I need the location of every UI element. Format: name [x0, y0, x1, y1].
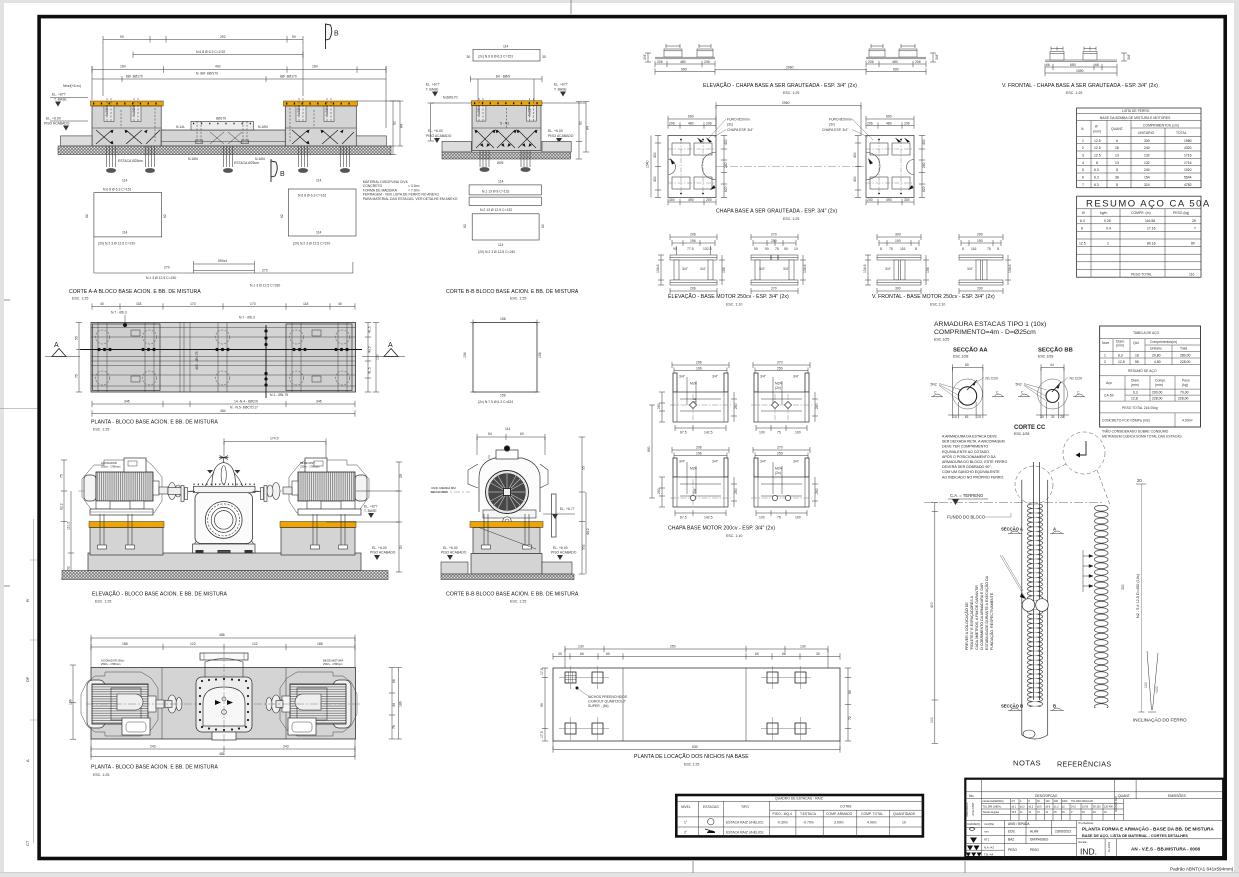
svg-text:260: 260	[734, 488, 738, 494]
svg-text:430: 430	[853, 176, 857, 182]
svg-text:330: 330	[1121, 584, 1125, 590]
svg-text:N2 - 5 # 12.5 D=450 (10x): N2 - 5 # 12.5 D=450 (10x)	[1136, 573, 1140, 618]
svg-text:13: 13	[1115, 153, 1119, 157]
svg-text:TABELA DE AÇO: TABELA DE AÇO	[1133, 331, 1160, 335]
svg-text:PESO: PESO	[1008, 848, 1017, 852]
svg-text:ESC.1/28: ESC.1/28	[1014, 432, 1029, 436]
svg-text:N.6 8 Ø 6.3 C=2.92: N.6 8 Ø 6.3 C=2.92	[196, 50, 225, 54]
svg-text:116: 116	[971, 247, 977, 251]
svg-text:486: 486	[219, 752, 225, 756]
svg-text:17.16: 17.16	[1147, 226, 1156, 230]
svg-text:90: 90	[765, 247, 769, 251]
svg-text:3/4": 3/4"	[783, 267, 790, 271]
svg-text:CAD/ARQ.: CAD/ARQ.	[967, 822, 981, 826]
svg-text:196: 196	[690, 239, 696, 243]
svg-text:N.1 - ØN.75: N.1 - ØN.75	[270, 393, 288, 397]
svg-text:ESTACA RAIZ c/HÉLICE: ESTACA RAIZ c/HÉLICE	[726, 829, 764, 834]
svg-text:250: 250	[771, 239, 777, 243]
svg-text:N.2 13 Ø 12.5 C=132: N.2 13 Ø 12.5 C=132	[480, 208, 512, 212]
svg-text:75: 75	[889, 247, 893, 251]
svg-text:100: 100	[759, 516, 765, 520]
svg-text:±0.2: ±0.2	[1020, 806, 1025, 809]
svg-text:196: 196	[696, 367, 702, 371]
svg-text:80: 80	[1191, 242, 1195, 246]
svg-text:228,00: 228,00	[1180, 360, 1190, 364]
svg-text:6: 6	[1082, 175, 1084, 179]
svg-text:COTAS: COTAS	[840, 805, 852, 809]
svg-text:Ø: Ø	[1082, 211, 1085, 215]
svg-text:400: 400	[930, 602, 934, 608]
svg-text:130: 130	[578, 645, 584, 649]
svg-text:552: 552	[582, 544, 586, 550]
svg-text:5: 5	[1082, 168, 1084, 172]
svg-text:4.00m: 4.00m	[867, 821, 877, 825]
svg-text:84 - 8Ø/9: 84 - 8Ø/9	[496, 75, 510, 79]
svg-text:N.1 3 Ø 12.5 C=330: N.1 3 Ø 12.5 C=330	[250, 284, 280, 288]
svg-text:402: 402	[215, 65, 221, 69]
svg-text:100: 100	[930, 717, 934, 723]
svg-text:PESO TOTAL 216.00kg: PESO TOTAL 216.00kg	[1122, 406, 1158, 410]
svg-text:132: 132	[1144, 153, 1150, 157]
svg-text:3/4": 3/4"	[693, 487, 697, 494]
svg-text:90: 90	[120, 35, 124, 39]
svg-text:114: 114	[122, 179, 128, 183]
svg-text:345: 345	[124, 400, 130, 404]
svg-text:250cv - 1780rpm: 250cv - 1780rpm	[300, 464, 319, 468]
svg-text:118: 118	[136, 302, 142, 306]
svg-text:ESTACA RAIZ c/HÉLICE: ESTACA RAIZ c/HÉLICE	[726, 820, 764, 825]
svg-text:6.3: 6.3	[1094, 168, 1099, 172]
svg-text:ESC.1:10: ESC.1:10	[930, 303, 945, 307]
svg-text:690: 690	[893, 68, 899, 72]
svg-text:4782: 4782	[1184, 183, 1192, 187]
svg-text:345: 345	[316, 400, 322, 404]
svg-text:3/4": 3/4"	[760, 460, 767, 464]
svg-text:±0.8: ±0.8	[1046, 806, 1051, 809]
svg-text:mm(Pa): mm(Pa)	[984, 822, 994, 826]
svg-text:FUNDO DO BLOCO: FUNDO DO BLOCO	[947, 515, 986, 520]
svg-text:62: 62	[393, 121, 397, 125]
svg-text:116.56: 116.56	[1145, 219, 1155, 223]
svg-text:N. 8Ø- 8Ø/170: N. 8Ø- 8Ø/170	[196, 72, 218, 76]
svg-text:(2x): (2x)	[775, 386, 781, 390]
svg-text:480: 480	[886, 121, 892, 125]
svg-text:134.6: 134.6	[863, 264, 867, 273]
svg-text:120: 120	[1046, 800, 1051, 803]
svg-text:8: 8	[915, 247, 917, 251]
svg-text:8Ø170: 8Ø170	[216, 117, 226, 121]
svg-text:EL. +6.00: EL. +6.00	[428, 129, 443, 133]
svg-text:N.3Ø4: N.3Ø4	[105, 106, 109, 116]
svg-text:COM UM GANCHO EQUIVALENTE: COM UM GANCHO EQUIVALENTE	[942, 470, 1000, 474]
svg-text:V. FRONTAL - BASE MOTOR 250cv: V. FRONTAL - BASE MOTOR 250cv - ESP. 3/4…	[872, 294, 995, 300]
svg-text:4320: 4320	[1184, 146, 1192, 150]
svg-text:Unitario: Unitario	[1150, 347, 1162, 351]
svg-text:SECÇÃO BB: SECÇÃO BB	[1038, 347, 1073, 354]
svg-text:66: 66	[580, 652, 584, 656]
svg-text:N.A.-A3: N.A.-A3	[984, 845, 994, 849]
svg-text:430: 430	[653, 176, 657, 182]
svg-text:T. BASE: T. BASE	[364, 509, 377, 513]
svg-text:FURO Ø20mm: FURO Ø20mm	[829, 118, 852, 122]
svg-text:206: 206	[904, 121, 910, 125]
svg-text:N.6Ø/170: N.6Ø/170	[443, 96, 458, 100]
svg-text:250cv - 1780rpm: 250cv - 1780rpm	[101, 662, 120, 666]
svg-text:N.1 3 Ø 12.5 C=230: N.1 3 Ø 12.5 C=230	[146, 276, 176, 280]
svg-text:ELEVAÇÃO - BLOCO BASE ACION. E: ELEVAÇÃO - BLOCO BASE ACION. E BB. DE MI…	[92, 591, 228, 598]
svg-text:N1 C/20: N1 C/20	[1070, 377, 1083, 381]
svg-text:72: 72	[848, 716, 852, 720]
svg-text:ESTABILIDADE DURANTE A EXECUÇÃ: ESTABILIDADE DURANTE A EXECUÇÃO DA	[984, 575, 989, 650]
svg-text:ALAN: ALAN	[1030, 830, 1039, 834]
svg-text:186: 186	[69, 699, 73, 705]
svg-text:154: 154	[1144, 175, 1150, 179]
svg-text:132: 132	[1144, 161, 1150, 165]
svg-text:CONCRETO FCK=25MPa (m3): CONCRETO FCK=25MPa (m3)	[1102, 419, 1150, 423]
svg-text:Comprimentos(m): Comprimentos(m)	[1150, 340, 1177, 344]
svg-text:ESC. 1:25: ESC. 1:25	[783, 217, 799, 221]
svg-text:LTDA./ABNT: LTDA./ABNT	[972, 802, 975, 816]
svg-text:QUANT: QUANT	[1118, 794, 1130, 798]
svg-text:DEVE TER COMPRIMENTO: DEVE TER COMPRIMENTO	[942, 445, 988, 449]
svg-text:206: 206	[690, 233, 696, 237]
svg-text:206: 206	[669, 121, 675, 125]
svg-text:3/4": 3/4"	[793, 460, 800, 464]
svg-text:20: 20	[1040, 415, 1044, 419]
svg-text:TIPO: TIPO	[741, 805, 749, 809]
svg-text:1: 1	[1104, 353, 1106, 357]
svg-text:58: 58	[1135, 360, 1139, 364]
svg-text:A: A	[1053, 527, 1056, 532]
svg-text:50-120: 50-120	[1093, 806, 1101, 809]
svg-text:118: 118	[303, 302, 309, 306]
svg-text:3/4": 3/4"	[935, 53, 939, 60]
svg-text:12.5: 12.5	[1079, 242, 1086, 246]
svg-text:29: 29	[399, 474, 403, 478]
svg-text:1716: 1716	[1184, 153, 1192, 157]
svg-text:84: 84	[586, 126, 590, 130]
svg-text:CORTE CC: CORTE CC	[1014, 425, 1046, 431]
svg-text:44: 44	[392, 703, 396, 707]
svg-text:TOL.DIM.ANGULAR: TOL.DIM.ANGULAR	[1071, 800, 1093, 803]
svg-text:A ARMADURA DA ESTACA DEVE: A ARMADURA DA ESTACA DEVE	[942, 435, 997, 439]
svg-text:TOL.DIM.LINEAL: TOL.DIM.LINEAL	[983, 806, 1002, 809]
svg-text:QUANTIDADE: QUANTIDADE	[893, 812, 916, 816]
svg-text:430: 430	[853, 152, 857, 158]
svg-text:T.ESTACA: T.ESTACA	[800, 812, 817, 816]
svg-text:QUANT.: QUANT.	[1111, 127, 1123, 131]
svg-text:114: 114	[503, 45, 509, 49]
svg-text:NICHOS PREENCHIDOS: NICHOS PREENCHIDOS	[588, 695, 628, 699]
svg-text:ESC. 1:25: ESC. 1:25	[510, 297, 526, 301]
svg-text:DF: DF	[25, 676, 30, 682]
svg-text:*NÃO CONSIDERADO SOBRE CONSUMO: *NÃO CONSIDERADO SOBRE CONSUMO	[1102, 429, 1169, 434]
svg-text:3/4": 3/4"	[793, 375, 800, 379]
svg-text:tolerância(GERAIS): tolerância(GERAIS)	[983, 800, 1004, 803]
svg-text:188: 188	[122, 642, 128, 646]
svg-text:114: 114	[505, 427, 511, 431]
svg-text:690: 690	[886, 115, 892, 119]
svg-text:324: 324	[1144, 183, 1150, 187]
svg-text:20,80: 20,80	[1152, 353, 1161, 357]
svg-text:3/4": 3/4"	[712, 460, 719, 464]
svg-text:CT: CT	[25, 840, 30, 846]
svg-text:8: 8	[997, 247, 999, 251]
svg-text:290: 290	[977, 233, 983, 237]
svg-text:80: 80	[965, 363, 969, 367]
svg-text:PLANTA DE LOCAÇÃO DOS NICHOS N: PLANTA DE LOCAÇÃO DOS NICHOS NA BASE	[634, 753, 749, 760]
svg-text:A: A	[54, 342, 59, 349]
svg-text:12.5: 12.5	[1094, 153, 1101, 157]
svg-text:20: 20	[1137, 478, 1142, 483]
svg-text:4: 4	[1082, 161, 1084, 165]
svg-text:N.14L: N.14L	[176, 125, 185, 129]
svg-text:250cv - 1780rpm: 250cv - 1780rpm	[101, 464, 120, 468]
svg-text:M24: M24	[690, 467, 697, 471]
svg-text:67.5: 67.5	[680, 516, 687, 520]
svg-text:5.8: 5.8	[693, 398, 697, 403]
svg-text:1920: 1920	[1184, 168, 1192, 172]
svg-text:18: 18	[1135, 353, 1139, 357]
svg-text:300: 300	[669, 198, 675, 202]
svg-text:280,00: 280,00	[1180, 353, 1190, 357]
svg-text:CHAPA BASE MOTOR 200cv - ESP.: CHAPA BASE MOTOR 200cv - ESP. 3/4" (2x)	[668, 526, 775, 532]
svg-text:PISO ACABADO: PISO ACABADO	[426, 134, 452, 138]
svg-text:300: 300	[895, 233, 901, 237]
svg-text:BASE DA BOMBA DE MISTURA E MOT: BASE DA BOMBA DE MISTURA E MOTORES	[1100, 116, 1171, 120]
svg-text:2: 2	[1082, 146, 1084, 150]
svg-text:164: 164	[120, 65, 126, 69]
svg-text:75: 75	[777, 431, 781, 435]
svg-text:±0.3: ±0.3	[1029, 806, 1034, 809]
svg-text:PLANTA - BLOCO BASE ACION. E: PLANTA - BLOCO BASE ACION. E BB. DE MIST…	[91, 420, 218, 426]
svg-text:66: 66	[1046, 63, 1050, 67]
svg-text:Tolerân.Angular: Tolerân.Angular	[983, 811, 1000, 814]
svg-text:62: 62	[85, 214, 89, 218]
svg-text:PISO ACABADO: PISO ACABADO	[370, 551, 396, 555]
svg-text:270: 270	[777, 446, 783, 450]
svg-text:590x4: 590x4	[218, 259, 227, 263]
svg-text:430: 430	[724, 139, 728, 145]
svg-text:243: 243	[283, 745, 289, 749]
svg-text:55: 55	[582, 466, 586, 470]
svg-text:90: 90	[754, 247, 758, 251]
svg-text:70,00: 70,00	[1180, 391, 1189, 395]
svg-text:TOTAL: TOTAL	[1176, 131, 1187, 135]
svg-text:N.6 8 Ø 6.3 C=161: N.6 8 Ø 6.3 C=161	[298, 194, 326, 198]
svg-text:156: 156	[722, 267, 726, 273]
svg-text:300: 300	[904, 198, 910, 202]
svg-text:44.2: 44.2	[586, 528, 590, 535]
svg-text:N.3Ø4: N.3Ø4	[528, 106, 532, 116]
svg-text:243: 243	[150, 745, 156, 749]
svg-text:6.3: 6.3	[1094, 183, 1099, 187]
svg-text:ESC. 1:10: ESC. 1:10	[726, 303, 742, 307]
svg-text:PISO ACABADO: PISO ACABADO	[44, 122, 70, 126]
svg-text:3/4": 3/4"	[967, 267, 974, 271]
svg-text:120-400: 120-400	[1104, 806, 1113, 809]
svg-text:36: 36	[1115, 175, 1119, 179]
svg-text:N.1Ø4: N.1Ø4	[255, 157, 265, 161]
svg-text:300: 300	[895, 287, 901, 291]
svg-text:486: 486	[219, 633, 225, 637]
svg-text:240: 240	[1144, 146, 1150, 150]
svg-text:5N2: 5N2	[931, 383, 937, 387]
svg-text:114: 114	[498, 180, 504, 184]
svg-text:5 - N1: 5 - N1	[500, 122, 509, 126]
svg-text:EL. +6.00: EL. +6.00	[46, 117, 61, 121]
svg-text:206: 206	[868, 60, 874, 64]
svg-text:PLANTA FORMA E ARMAÇÃO - BASE: PLANTA FORMA E ARMAÇÃO - BASE DA BB. DE …	[1082, 826, 1214, 832]
svg-text:T.B.-A4: T.B.-A4	[984, 853, 994, 857]
svg-text:480: 480	[892, 60, 898, 64]
svg-text:CA-50: CA-50	[1104, 394, 1114, 398]
svg-text:206: 206	[706, 121, 712, 125]
svg-text:0-10: 0-10	[1071, 806, 1076, 809]
svg-text:10: 10	[794, 247, 798, 251]
svg-text:Padrão ABNT(A1 841x594mm): Padrão ABNT(A1 841x594mm)	[1170, 867, 1234, 872]
svg-text:270: 270	[777, 361, 783, 365]
svg-text:(20) N.2 3 Ø 12.5 C=210: (20) N.2 3 Ø 12.5 C=210	[98, 242, 135, 246]
svg-text:290: 290	[977, 287, 983, 291]
svg-text:330: 330	[1144, 139, 1150, 143]
svg-text:200: 200	[706, 198, 712, 202]
svg-text:LISTA DE FERRO: LISTA DE FERRO	[1122, 109, 1150, 113]
svg-text:Compr.: Compr.	[1155, 379, 1166, 383]
svg-text:N.1 13 Ø 8 C=132: N.1 13 Ø 8 C=132	[482, 189, 510, 193]
svg-text:CORTE B-B BLOCO BASE ACION. E: CORTE B-B BLOCO BASE ACION. E BB. DE MIS…	[446, 592, 579, 598]
svg-text:RESUMO AÇO CA 50A: RESUMO AÇO CA 50A	[1086, 199, 1211, 210]
svg-text:116: 116	[900, 247, 906, 251]
svg-text:SUPER - (8x): SUPER - (8x)	[588, 704, 609, 708]
svg-text:76: 76	[392, 725, 396, 729]
svg-text:100: 100	[795, 516, 801, 520]
svg-text:228,00: 228,00	[1178, 397, 1188, 401]
svg-text:PESO: PESO	[1030, 848, 1039, 852]
svg-text:FURO Ø20mm: FURO Ø20mm	[727, 118, 750, 122]
svg-text:100: 100	[1144, 682, 1148, 688]
svg-text:1980: 1980	[1184, 139, 1192, 143]
svg-text:206: 206	[657, 60, 663, 64]
svg-text:23/08/2023: 23/08/2023	[1055, 830, 1071, 834]
svg-text:EMISSÕES: EMISSÕES	[1168, 793, 1186, 798]
svg-text:NÍVEL: NÍVEL	[681, 805, 691, 809]
svg-text:4,00m³: 4,00m³	[1182, 419, 1193, 423]
svg-text:60: 60	[755, 652, 759, 656]
svg-text:66: 66	[848, 690, 852, 694]
svg-text:100: 100	[795, 431, 801, 435]
svg-text:-0.70m: -0.70m	[803, 821, 814, 825]
svg-text:NT1: NT1	[984, 838, 990, 842]
svg-text:3/4": 3/4"	[1127, 53, 1131, 60]
svg-text:EL. +6.00: EL. +6.00	[443, 546, 458, 550]
svg-text:B: B	[334, 31, 339, 38]
svg-text:METRAGEM CUBICA SOMA TOTAL DAS: METRAGEM CUBICA SOMA TOTAL DAS ESTACAS.	[1102, 435, 1183, 439]
svg-text:T. BASE: T. BASE	[426, 87, 439, 91]
svg-text:M24: M24	[690, 382, 697, 386]
svg-text:Ø: Ø	[1095, 125, 1098, 129]
svg-text:12.5: 12.5	[1094, 146, 1101, 150]
svg-text:COMPRIMENTOS (cm): COMPRIMENTOS (cm)	[1143, 123, 1179, 127]
svg-text:206: 206	[696, 361, 702, 365]
svg-text:6: 6	[1116, 139, 1118, 143]
svg-text:3: 3	[1082, 153, 1084, 157]
svg-text:Peso: Peso	[1182, 379, 1190, 383]
svg-text:30: 30	[467, 55, 471, 59]
svg-text:3/4": 3/4"	[643, 53, 647, 60]
svg-text:ESTACA Ø25cm: ESTACA Ø25cm	[118, 159, 143, 163]
svg-text:31: 31	[1051, 415, 1055, 419]
svg-text:(2x) N.7 5 Ø 6.3 C=624: (2x) N.7 5 Ø 6.3 C=624	[478, 400, 513, 404]
svg-text:CHAPA ESP. 3/4": CHAPA ESP. 3/4"	[727, 128, 754, 132]
svg-text:N.6 8 Ø 6.3 C=151: N.6 8 Ø 6.3 C=151	[103, 188, 131, 192]
svg-text:110.2: 110.2	[67, 522, 71, 530]
svg-text:2960: 2960	[786, 66, 794, 70]
svg-text:DEVERÁ SER DOBRADO 90°,: DEVERÁ SER DOBRADO 90°,	[942, 465, 992, 469]
svg-text:5544: 5544	[1184, 175, 1192, 179]
svg-text:890: 890	[647, 446, 651, 452]
svg-text:PESO (kg): PESO (kg)	[1173, 211, 1189, 215]
svg-text:(mm): (mm)	[1116, 344, 1124, 348]
svg-text:ESC. 1:25: ESC. 1:25	[72, 297, 88, 301]
svg-text:EL. +6.00: EL. +6.00	[553, 546, 568, 550]
svg-text:90: 90	[784, 247, 788, 251]
svg-text:30: 30	[542, 55, 546, 59]
svg-text:ESC. 1:25: ESC. 1:25	[510, 600, 526, 604]
svg-text:130: 130	[376, 354, 380, 360]
svg-text:77.5: 77.5	[687, 247, 694, 251]
svg-text:690: 690	[681, 68, 687, 72]
svg-text:0.4: 0.4	[1106, 226, 1111, 230]
svg-text:(20) N.2 3 Ø 12.5 C=210: (20) N.2 3 Ø 12.5 C=210	[293, 242, 330, 246]
svg-text:No.: No.	[969, 794, 974, 798]
svg-text:ESC.1:25: ESC.1:25	[684, 763, 699, 767]
svg-text:13: 13	[1115, 161, 1119, 165]
svg-text:7: 7	[1082, 183, 1084, 187]
svg-text:PARA MATERIAL DAS ESTACAS, VER: PARA MATERIAL DAS ESTACAS, VER DETALHE E…	[363, 197, 458, 201]
svg-text:260: 260	[815, 488, 819, 494]
svg-text:3/4": 3/4"	[712, 375, 719, 379]
svg-text:90: 90	[292, 35, 296, 39]
svg-text:228,00: 228,00	[1152, 397, 1162, 401]
svg-text:1°: 1°	[1071, 811, 1073, 814]
svg-text:100: 100	[759, 431, 765, 435]
svg-text:170: 170	[250, 302, 256, 306]
svg-text:5N2: 5N2	[1016, 383, 1022, 387]
svg-text:17.5: 17.5	[540, 731, 544, 738]
svg-text:156: 156	[926, 267, 930, 273]
svg-text:~100: ~100	[1155, 686, 1159, 694]
svg-text:SER DEIXADA RETA. A ANCORAGEM: SER DEIXADA RETA. A ANCORAGEM	[942, 440, 1005, 444]
svg-text:ACIONADOR: ACIONADOR	[101, 461, 117, 465]
svg-text:EL. +6.00: EL. +6.00	[372, 546, 387, 550]
svg-text:ARMADURA ESTACAS TIPO 1 (10x): ARMADURA ESTACAS TIPO 1 (10x)	[934, 321, 1046, 328]
svg-text:REFERÊNCIAS: REFERÊNCIAS	[1057, 760, 1111, 769]
svg-text:3/4": 3/4"	[679, 375, 686, 379]
svg-text:CADA 3METROS, A FIM DE GARANTI: CADA 3METROS, A FIM DE GARANTIR	[975, 585, 979, 650]
svg-text:A: A	[388, 342, 393, 349]
svg-text:1: 1	[1107, 242, 1109, 246]
svg-text:270: 270	[771, 233, 777, 237]
svg-text:250cv - 1780rpm: 250cv - 1780rpm	[323, 662, 342, 666]
svg-text:250: 250	[670, 645, 676, 649]
svg-text:75: 75	[60, 474, 64, 478]
svg-text:430: 430	[653, 152, 657, 158]
svg-text:8: 8	[1116, 183, 1118, 187]
svg-text:0.25: 0.25	[1104, 219, 1111, 223]
svg-text:170: 170	[190, 302, 196, 306]
svg-text:SECÇÃO AA: SECÇÃO AA	[953, 347, 988, 354]
